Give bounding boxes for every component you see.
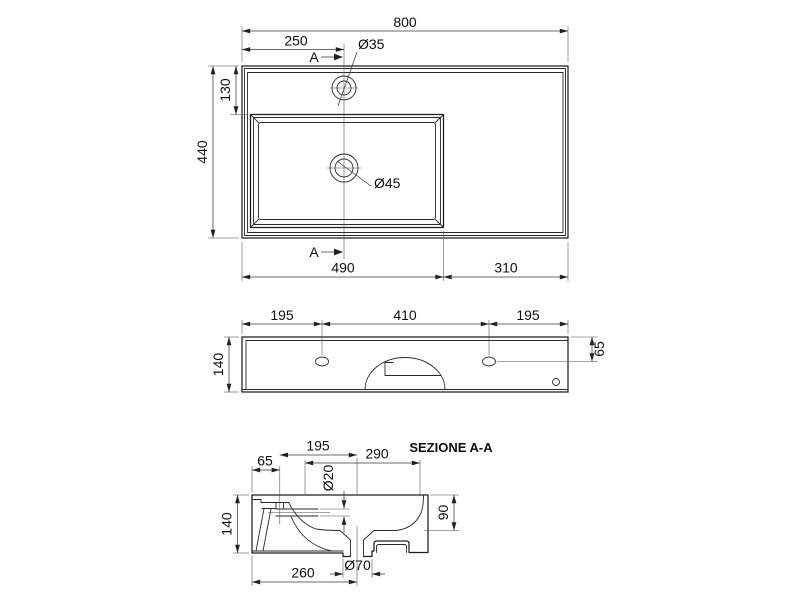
dim-text-310: 310 bbox=[494, 260, 518, 276]
section-bowl bbox=[256, 495, 424, 557]
plan-outer-edge bbox=[242, 66, 568, 238]
bowl-interior-profile bbox=[289, 495, 424, 540]
foot-slope-inner bbox=[263, 509, 271, 551]
dim-text-65: 65 bbox=[257, 453, 273, 469]
dim-text-d70: Ø70 bbox=[344, 557, 371, 573]
dim-tap-offset: 250 bbox=[242, 33, 344, 50]
basin-corner-chamfer bbox=[251, 115, 259, 123]
basin-corner-chamfer bbox=[436, 115, 444, 123]
front-view: 195 410 195 140 65 bbox=[210, 307, 607, 392]
siphon-arch-cutout bbox=[365, 358, 445, 390]
dim-text-290: 290 bbox=[365, 446, 389, 462]
dim-text-140: 140 bbox=[219, 512, 235, 536]
dim-drain-boss: Ø70 bbox=[330, 557, 385, 578]
drain-plug-hole bbox=[553, 379, 560, 386]
dim-text-800: 800 bbox=[393, 14, 417, 30]
section-outline bbox=[252, 495, 428, 557]
dim-text-195-right: 195 bbox=[516, 307, 540, 323]
label-drain-hole-dia: Ø45 bbox=[374, 175, 401, 191]
drain-hole: Ø45 bbox=[327, 154, 401, 191]
dim-text-195-left: 195 bbox=[270, 307, 294, 323]
dim-text-d20: Ø20 bbox=[320, 465, 336, 492]
section-title: SEZIONE A-A bbox=[409, 440, 493, 455]
dim-text-65: 65 bbox=[591, 341, 607, 357]
label-tap-hole-dia: Ø35 bbox=[358, 36, 385, 52]
basin-mid-rect bbox=[254, 118, 441, 225]
sink-technical-drawing: Ø35 Ø45 A A 800 250 bbox=[0, 0, 800, 600]
section-bottom-inner-lines bbox=[252, 545, 407, 553]
arch-outline bbox=[365, 358, 445, 390]
section-marker-bottom: A bbox=[309, 244, 319, 260]
section-marker-top: A bbox=[309, 49, 319, 65]
plan-body-outline bbox=[242, 66, 568, 238]
plan-outer-edge-2 bbox=[245, 69, 566, 236]
section-view: SEZIONE A-A bbox=[219, 438, 494, 587]
mounting-hole-right bbox=[483, 357, 496, 366]
dim-text-195: 195 bbox=[306, 438, 330, 454]
plan-basin bbox=[251, 115, 444, 228]
dim-text-130: 130 bbox=[217, 78, 233, 102]
dim-text-410: 410 bbox=[393, 307, 417, 323]
dim-text-140: 140 bbox=[210, 353, 226, 377]
mounting-hole-left bbox=[316, 357, 329, 366]
dim-tap-depth: 130 bbox=[217, 66, 248, 115]
plan-view: Ø35 Ø45 A A 800 250 bbox=[194, 14, 568, 281]
section-arrow-top-head bbox=[334, 54, 343, 61]
dim-drain-from-back: 260 bbox=[252, 526, 357, 586]
dim-front-holes: 195 410 195 bbox=[242, 307, 568, 355]
dim-text-440: 440 bbox=[194, 140, 210, 164]
technical-drawing-canvas: Ø35 Ø45 A A 800 250 bbox=[0, 0, 800, 600]
basin-floor-rect bbox=[259, 123, 436, 220]
dim-tap-to-drain: 195 bbox=[280, 438, 357, 496]
bowl-underside bbox=[291, 517, 343, 552]
dim-tap-from-back: 65 bbox=[252, 453, 280, 493]
dim-text-90: 90 bbox=[435, 505, 451, 521]
basin-corner-chamfer bbox=[251, 220, 259, 228]
plan-rim-line bbox=[248, 73, 564, 233]
dim-text-250: 250 bbox=[284, 33, 308, 49]
dim-bowl-depth: 90 bbox=[424, 495, 459, 531]
foot-slope-outer bbox=[256, 509, 264, 552]
dim-section-height: 140 bbox=[219, 495, 250, 553]
dim-front-height: 140 bbox=[210, 337, 239, 392]
basin-outer-rect bbox=[251, 115, 444, 228]
tap-hole: Ø35 bbox=[330, 36, 385, 106]
dim-text-260: 260 bbox=[291, 565, 315, 581]
section-arrow-bottom-head bbox=[334, 249, 343, 256]
basin-corner-chamfer bbox=[436, 220, 444, 228]
section-bottom-profile bbox=[252, 541, 428, 557]
dim-inlet-dia: Ø20 bbox=[320, 465, 350, 533]
front-body-outline bbox=[242, 337, 568, 392]
dim-text-490: 490 bbox=[331, 260, 355, 276]
tap-hole-leader bbox=[338, 52, 357, 106]
